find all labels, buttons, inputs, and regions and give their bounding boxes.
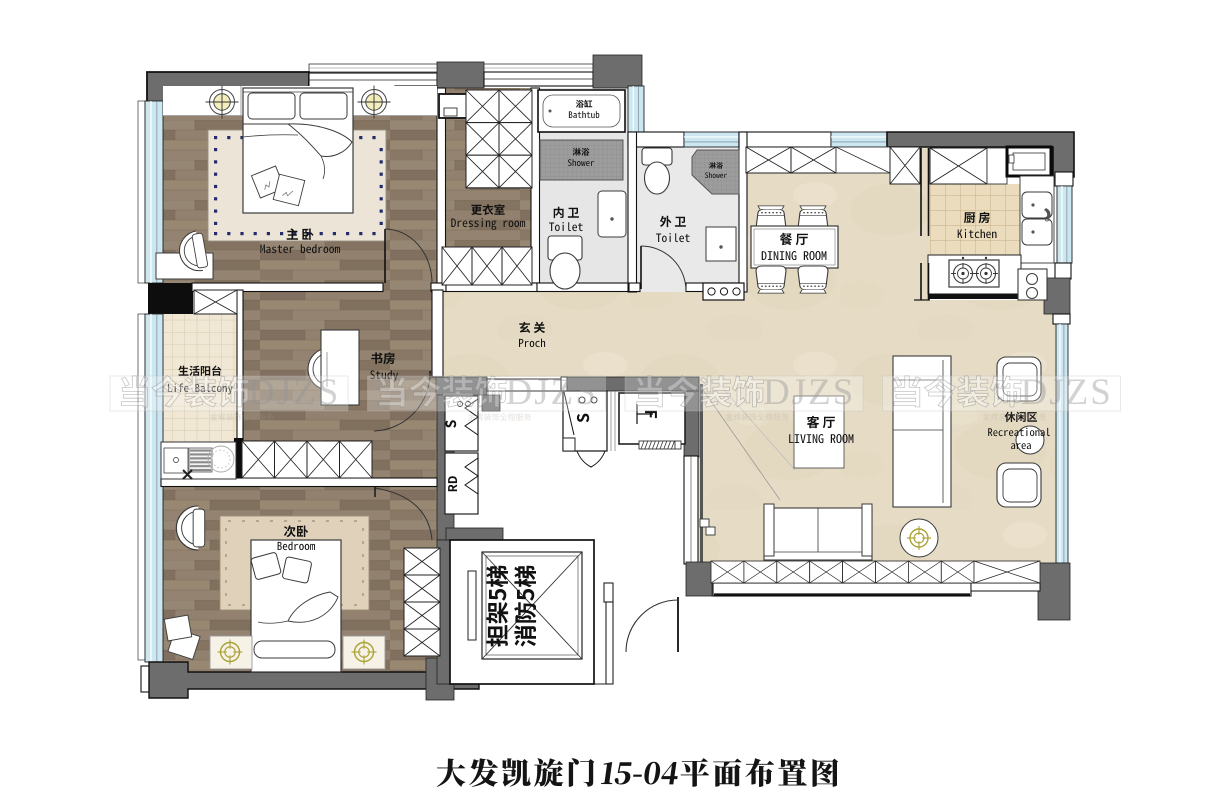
svg-text:DJZS: DJZS (248, 372, 340, 413)
svg-text:DJZS: DJZS (763, 372, 855, 413)
svg-text:DJZS: DJZS (1021, 372, 1113, 413)
svg-text:DJZS: DJZS (506, 372, 598, 413)
